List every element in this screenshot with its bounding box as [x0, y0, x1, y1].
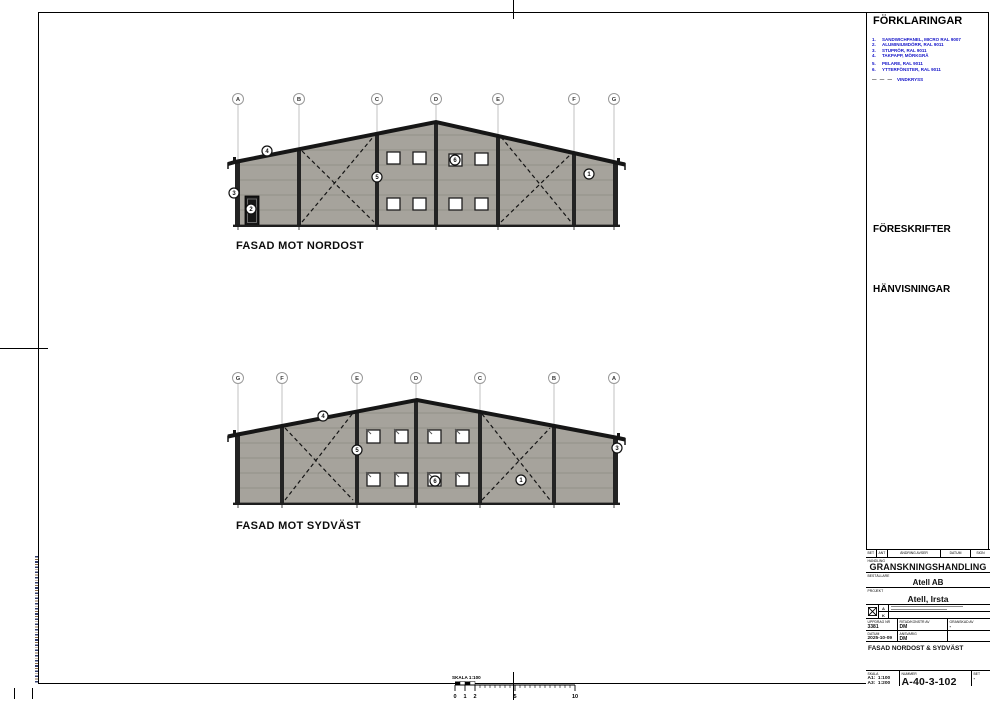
bestallare-label: BESTÄLLARE — [868, 574, 890, 578]
scale-bar-label: SKALA 1:100 — [452, 675, 481, 680]
rev-col-datum: DATUM — [941, 550, 971, 557]
handling-label: HANDLING — [868, 559, 886, 563]
scale-tick-label: 10 — [572, 694, 578, 700]
company-text-bars — [889, 605, 990, 611]
projekt-value: Atell, Irsta — [866, 588, 990, 604]
fold-mark-top — [513, 0, 514, 19]
handling-row: HANDLING GRANSKNINGSHANDLING — [866, 558, 990, 573]
scale-bar: SKALA 1:100 0 1 2 5 10 — [435, 670, 595, 702]
rev-col-bet: BET — [866, 550, 877, 557]
fold-mark-left — [0, 348, 48, 349]
grid-bubbles: G F E D C B A — [233, 373, 620, 384]
facade-nordost-drawing: A B C D E F G 4 3 2 5 6 1 — [225, 88, 635, 240]
base-ticks — [238, 227, 614, 230]
datum-value: 2025-10-09 — [868, 636, 896, 641]
grid-bubble-label: G — [612, 97, 617, 103]
legend-item: 4.TAKPAPP, MÖRKGRÅ — [872, 53, 988, 58]
grid-bubble-label: E — [496, 97, 500, 103]
number-row: SKALA A1: 1:100 A3: 1:200 NUMMER A-40-3-… — [866, 671, 990, 686]
bet-value: - — [974, 676, 989, 682]
vindkryss-note: — — — VINDKRYSS — [872, 77, 923, 82]
grid-bubble-label: F — [280, 376, 284, 382]
foreskrifter-heading: FÖRESKRIFTER — [873, 224, 951, 235]
projekt-row: PROJEKT Atell, Irsta — [866, 588, 990, 605]
hanvisningar-heading: HÄNVISNINGAR — [873, 284, 950, 295]
grid-bubble-label: B — [552, 376, 556, 382]
grid-bubble-label: G — [236, 376, 241, 382]
uppdrag-row: UPPDRAG NR 3381 RITAD/KONSTR AV DM GRANS… — [866, 619, 990, 631]
legend-item-text: TAKPAPP, MÖRKGRÅ — [882, 53, 988, 58]
legend-item-text: YTTERFÖNSTER, RAL 9011 — [882, 67, 988, 72]
datum-row: DATUM 2025-10-09 ANSVARIG DM — [866, 631, 990, 642]
grid-bubbles: A B C D E F G — [233, 94, 620, 105]
plot-stamp-text-strip — [35, 556, 38, 684]
scale-major-ticks — [455, 685, 575, 691]
rev-col-sign: SIGN — [971, 550, 990, 557]
legend-item-number: 6. — [872, 67, 882, 72]
nummer-value: A-40-3-102 — [902, 676, 970, 687]
company-text-bars — [889, 614, 990, 616]
crossed-box-logo-icon — [868, 607, 877, 616]
legend-item-number: 4. — [872, 53, 882, 58]
scale-tick-label: 5 — [513, 694, 516, 700]
rev-col-andring: ÄNDRING AVSER — [888, 550, 941, 557]
scale-tick-label: 1 — [463, 694, 466, 700]
legend-item: 6.YTTERFÖNSTER, RAL 9011 — [872, 67, 988, 72]
ansvarig-value: DM — [900, 636, 946, 642]
grid-bubble-label: D — [434, 97, 438, 103]
drawing-title-row: FASAD NORDOST & SYDVÄST — [866, 642, 990, 671]
logo-cell — [866, 605, 879, 618]
grid-bubble-label: E — [355, 376, 359, 382]
wall-cladding — [235, 400, 618, 503]
vindkryss-label: VINDKRYSS — [897, 77, 923, 82]
discipline-a-row: A — [879, 605, 990, 612]
discipline-a-letter: A — [879, 605, 889, 611]
drawing-title: FASAD NORDOST & SYDVÄST — [866, 642, 990, 655]
grid-bubble-label: D — [414, 376, 418, 382]
drawing-sheet-canvas: A B C D E F G 4 3 2 5 6 1 FASAD MOT NORD… — [0, 0, 1006, 702]
logo-row: A K — [866, 605, 990, 619]
facade-nordost-label: FASAD MOT NORDOST — [236, 240, 364, 252]
grid-bubble-label: F — [572, 97, 576, 103]
revision-header-row: BET ANT ÄNDRING AVSER DATUM SIGN — [866, 550, 990, 558]
ritad-value: DM — [900, 624, 946, 630]
discipline-k-letter: K — [879, 612, 889, 618]
discipline-k-row: K — [879, 612, 990, 618]
base-ticks — [238, 505, 614, 508]
registration-tick — [14, 688, 15, 699]
projekt-label: PROJEKT — [868, 589, 884, 593]
granskad-value: - — [950, 624, 989, 630]
dash-line-symbol: — — — — [872, 77, 893, 82]
title-block: BET ANT ÄNDRING AVSER DATUM SIGN HANDLIN… — [866, 549, 990, 685]
registration-tick — [32, 688, 33, 699]
uppdrag-value: 3381 — [868, 624, 896, 630]
rev-col-ant: ANT — [877, 550, 888, 557]
scale-tick-label: 0 — [453, 694, 456, 700]
facade-sydvast-label: FASAD MOT SYDVÄST — [236, 520, 361, 532]
skala-a3-value: A3: 1:200 — [868, 681, 898, 686]
scale-tick-labels: 0 1 2 5 10 — [453, 694, 578, 700]
grid-bubble-label: B — [297, 97, 301, 103]
facade-sydvast-drawing: G F E D C B A 4 5 6 1 3 — [225, 363, 635, 515]
bestallare-row: BESTÄLLARE Atell AB — [866, 573, 990, 588]
legend-list: 1.SANDWICHPANEL, MICRO RAL 9007 2.ALUMIN… — [872, 37, 988, 72]
legend-title: FÖRKLARINGAR — [873, 15, 962, 27]
scale-tick-label: 2 — [473, 694, 476, 700]
discipline-column: A K — [879, 605, 990, 618]
